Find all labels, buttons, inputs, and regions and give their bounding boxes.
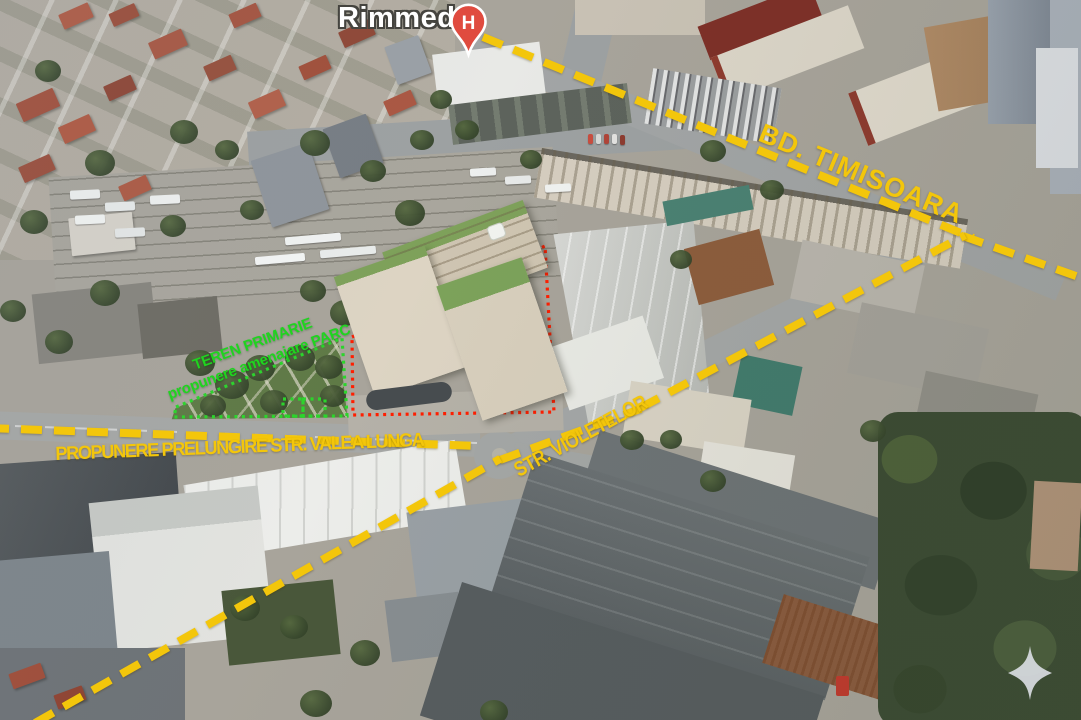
building-block bbox=[0, 648, 185, 720]
pin-letter: H bbox=[462, 13, 476, 34]
tree bbox=[0, 300, 26, 322]
aerial-view-stage: BD. TIMISOARA STR. VIOLETELOR PROPUNERE … bbox=[0, 0, 1081, 720]
building-block bbox=[575, 0, 705, 35]
tree bbox=[300, 690, 332, 717]
building-block bbox=[1030, 481, 1081, 571]
hospital-pin-icon[interactable]: H bbox=[449, 3, 488, 59]
red-truck bbox=[836, 676, 849, 696]
tower-block bbox=[1036, 48, 1078, 168]
sparkle-watermark-icon bbox=[1008, 646, 1052, 700]
tree bbox=[350, 640, 380, 666]
place-label[interactable]: Rimmed bbox=[338, 2, 455, 35]
courtyard-green bbox=[221, 579, 340, 665]
rusty-roof bbox=[684, 229, 774, 305]
